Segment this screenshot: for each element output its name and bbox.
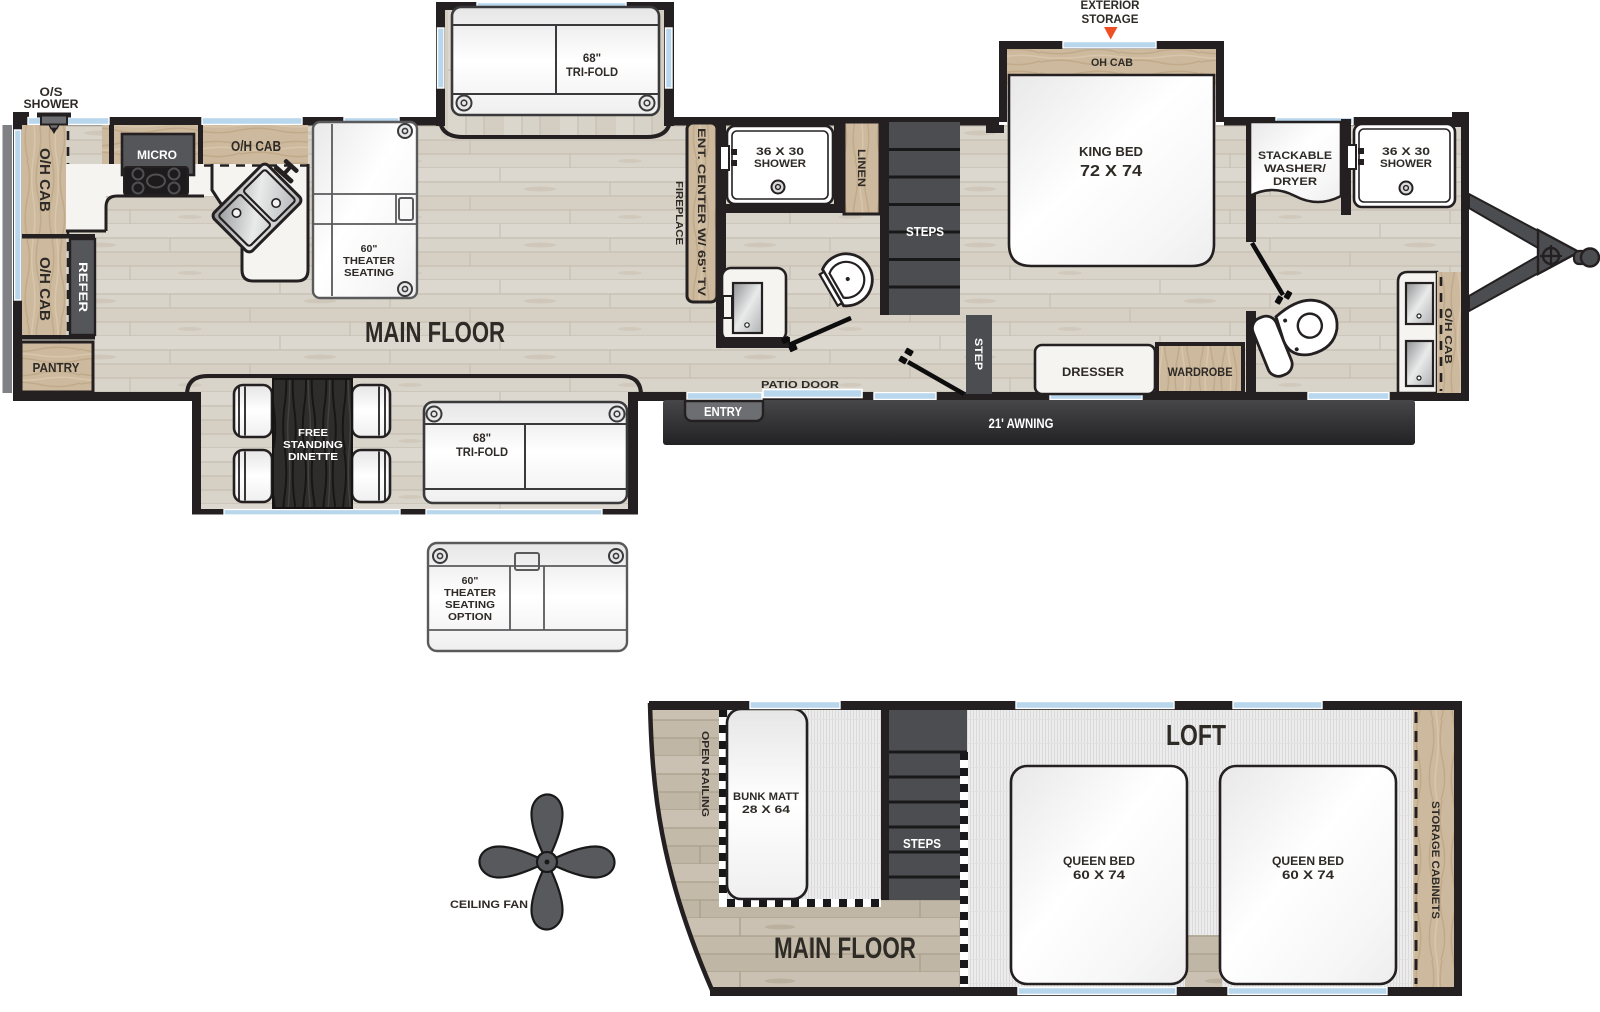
- svg-text:STEPS: STEPS: [906, 225, 944, 239]
- svg-text:MICRO: MICRO: [137, 148, 177, 162]
- svg-text:QUEEN BED: QUEEN BED: [1272, 854, 1344, 868]
- svg-text:LINEN: LINEN: [855, 149, 867, 187]
- svg-text:36 X 30: 36 X 30: [756, 146, 804, 158]
- svg-text:PANTRY: PANTRY: [33, 360, 80, 375]
- svg-text:SHOWER: SHOWER: [754, 158, 806, 170]
- svg-text:60": 60": [462, 575, 479, 587]
- svg-text:STANDING: STANDING: [283, 439, 343, 451]
- svg-text:FREE: FREE: [298, 427, 328, 439]
- svg-text:CEILING FAN: CEILING FAN: [450, 899, 528, 911]
- svg-text:TRI-FOLD: TRI-FOLD: [456, 447, 508, 459]
- svg-text:PATIO DOOR: PATIO DOOR: [761, 379, 839, 391]
- svg-text:THEATER: THEATER: [444, 587, 496, 599]
- svg-text:KING BED: KING BED: [1079, 144, 1143, 159]
- svg-text:SEATING: SEATING: [445, 599, 495, 611]
- svg-text:WARDROBE: WARDROBE: [1168, 367, 1233, 379]
- svg-text:60": 60": [361, 243, 378, 255]
- svg-text:ENT. CENTER W/ 65" TV: ENT. CENTER W/ 65" TV: [695, 128, 707, 297]
- svg-text:DRYER: DRYER: [1273, 176, 1317, 188]
- svg-text:OH CAB: OH CAB: [1091, 57, 1133, 69]
- svg-text:O/H CAB: O/H CAB: [1442, 308, 1454, 365]
- svg-text:SHOWER: SHOWER: [1380, 158, 1432, 170]
- svg-text:68": 68": [583, 53, 601, 65]
- svg-text:STEPS: STEPS: [903, 837, 941, 851]
- svg-text:QUEEN BED: QUEEN BED: [1063, 854, 1135, 868]
- svg-text:EXTERIOR: EXTERIOR: [1081, 0, 1141, 12]
- svg-text:DINETTE: DINETTE: [288, 451, 338, 463]
- svg-text:REFER: REFER: [76, 262, 88, 313]
- svg-text:DRESSER: DRESSER: [1062, 365, 1124, 379]
- svg-text:STACKABLE: STACKABLE: [1258, 150, 1332, 162]
- svg-text:LOFT: LOFT: [1166, 720, 1226, 752]
- svg-text:O/H CAB: O/H CAB: [231, 139, 281, 155]
- svg-text:OPEN RAILING: OPEN RAILING: [699, 731, 711, 817]
- svg-text:BUNK MATT: BUNK MATT: [733, 791, 799, 803]
- svg-text:72 X 74: 72 X 74: [1080, 163, 1142, 180]
- svg-text:OPTION: OPTION: [448, 611, 492, 623]
- svg-text:36 X 30: 36 X 30: [1382, 146, 1430, 158]
- svg-text:SHOWER: SHOWER: [24, 97, 79, 111]
- svg-text:O/H CAB: O/H CAB: [36, 257, 53, 321]
- svg-text:60 X 74: 60 X 74: [1282, 868, 1334, 882]
- svg-text:ENTRY: ENTRY: [704, 404, 742, 419]
- svg-text:SEATING: SEATING: [344, 267, 394, 279]
- svg-text:21' AWNING: 21' AWNING: [989, 416, 1054, 431]
- svg-text:STEP: STEP: [972, 338, 984, 370]
- svg-text:60 X 74: 60 X 74: [1073, 868, 1125, 882]
- svg-text:STORAGE CABINETS: STORAGE CABINETS: [1429, 801, 1441, 919]
- svg-text:TRI-FOLD: TRI-FOLD: [566, 67, 618, 79]
- svg-text:MAIN FLOOR: MAIN FLOOR: [365, 317, 505, 349]
- svg-text:FIREPLACE: FIREPLACE: [673, 181, 685, 245]
- svg-text:28 X 64: 28 X 64: [742, 804, 791, 816]
- svg-text:O/H CAB: O/H CAB: [36, 148, 53, 212]
- svg-text:MAIN FLOOR: MAIN FLOOR: [774, 932, 916, 965]
- svg-text:STORAGE: STORAGE: [1082, 12, 1139, 26]
- svg-text:WASHER/: WASHER/: [1264, 163, 1326, 175]
- svg-text:THEATER: THEATER: [343, 255, 395, 267]
- svg-text:68": 68": [473, 433, 491, 445]
